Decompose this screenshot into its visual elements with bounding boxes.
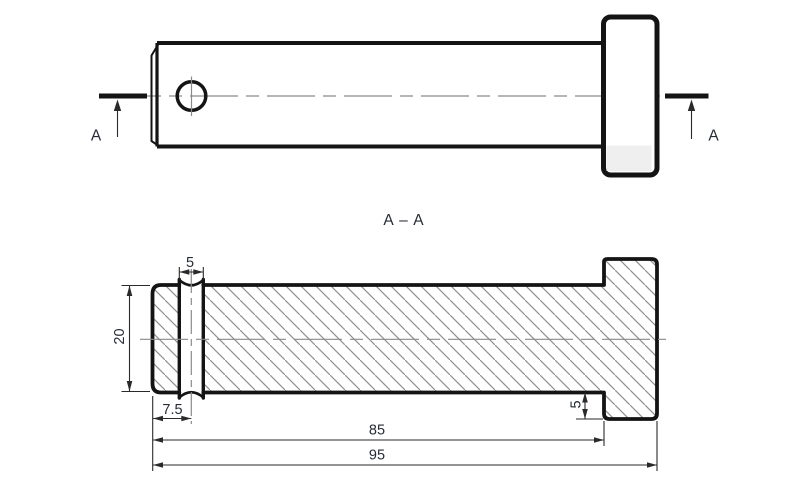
dimension-length-to-head: 85 [153, 421, 604, 446]
dimension-diameter: 20 [112, 286, 150, 392]
dimension-value: 7.5 [162, 402, 182, 418]
technical-drawing-canvas: A A A – A [0, 0, 800, 488]
dimension-value: 20 [112, 328, 128, 344]
cut-label-left: A [91, 128, 102, 145]
dimension-value: 5 [186, 255, 194, 271]
section-title: A – A [383, 212, 424, 229]
arrow-down-icon [127, 381, 133, 392]
dimension-hole-offset: 7.5 [153, 396, 192, 471]
arrow-right-icon [594, 437, 604, 443]
cut-arrow-up-icon [688, 100, 695, 112]
clevis-pin-drawing: A A A – A [0, 0, 800, 488]
section-cut-marker-right: A [665, 96, 719, 145]
arrow-right-icon [193, 269, 203, 274]
arrow-up-icon [127, 286, 133, 297]
arrow-right-icon [181, 416, 191, 421]
section-cut-marker-left: A [91, 96, 147, 145]
dimension-head-step: 5 [569, 393, 604, 420]
cut-label-right: A [708, 128, 719, 145]
arrow-down-icon [582, 409, 588, 419]
head-recess-shading [607, 146, 652, 172]
dimension-overall-length: 95 [153, 421, 657, 471]
dimension-value: 85 [369, 423, 385, 439]
section-view: A – A 5 20 [112, 212, 666, 471]
arrow-left-icon [153, 462, 163, 468]
arrow-right-icon [647, 462, 657, 468]
front-view: A A [91, 17, 720, 175]
cut-arrow-up-icon [114, 100, 121, 112]
arrow-left-icon [153, 437, 163, 443]
dimension-value: 5 [569, 400, 585, 408]
dimension-value: 95 [369, 448, 385, 464]
